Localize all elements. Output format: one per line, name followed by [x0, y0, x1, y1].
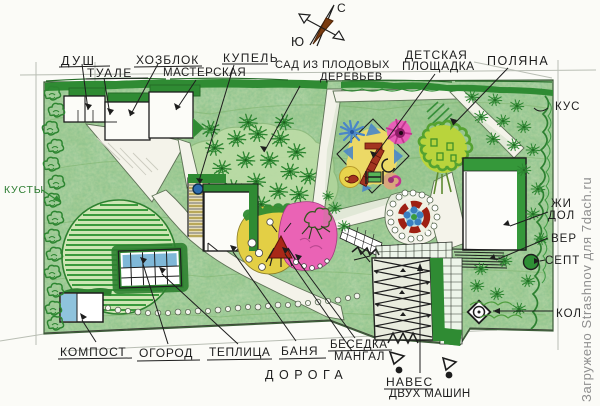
svg-text:ДВУХ МАШИН: ДВУХ МАШИН: [389, 388, 471, 400]
svg-text:БАНЯ: БАНЯ: [281, 344, 319, 358]
svg-text:Ю: Ю: [291, 34, 304, 49]
svg-text:ТЕПЛИЦА: ТЕПЛИЦА: [209, 345, 271, 359]
svg-text:ХОЗБЛОК: ХОЗБЛОК: [136, 53, 199, 67]
svg-text:ПОЛЯНА: ПОЛЯНА: [487, 54, 549, 68]
svg-text:С: С: [337, 1, 346, 15]
svg-text:СЕПТ: СЕПТ: [545, 255, 580, 267]
svg-text:ВЕР: ВЕР: [551, 233, 577, 245]
svg-text:КУСТЫ: КУСТЫ: [4, 184, 44, 196]
svg-text:ДОРОГА: ДОРОГА: [265, 368, 348, 382]
svg-text:ПЛОЩАДКА: ПЛОЩАДКА: [402, 59, 475, 73]
svg-text:КУС: КУС: [555, 101, 580, 113]
svg-text:КУПЕЛЬ: КУПЕЛЬ: [223, 51, 279, 65]
svg-text:МАСТЕРСКАЯ: МАСТЕРСКАЯ: [163, 67, 246, 79]
svg-text:ДОЛ: ДОЛ: [548, 210, 575, 222]
svg-text:ЖИ: ЖИ: [551, 198, 572, 210]
svg-text:ДЕРЕВЬЕВ: ДЕРЕВЬЕВ: [320, 71, 383, 83]
svg-text:САД ИЗ ПЛОДОВЫХ: САД ИЗ ПЛОДОВЫХ: [275, 59, 390, 71]
svg-text:БЕСЕДКА: БЕСЕДКА: [330, 339, 388, 351]
svg-text:Загружено Strashnov для 7dach.: Загружено Strashnov для 7dach.ru: [579, 177, 594, 402]
svg-text:НАВЕС: НАВЕС: [386, 375, 433, 389]
svg-text:КОМПОСТ: КОМПОСТ: [60, 345, 127, 359]
svg-text:ОГОРОД: ОГОРОД: [139, 346, 193, 360]
svg-text:МАНГАЛ: МАНГАЛ: [334, 351, 385, 363]
